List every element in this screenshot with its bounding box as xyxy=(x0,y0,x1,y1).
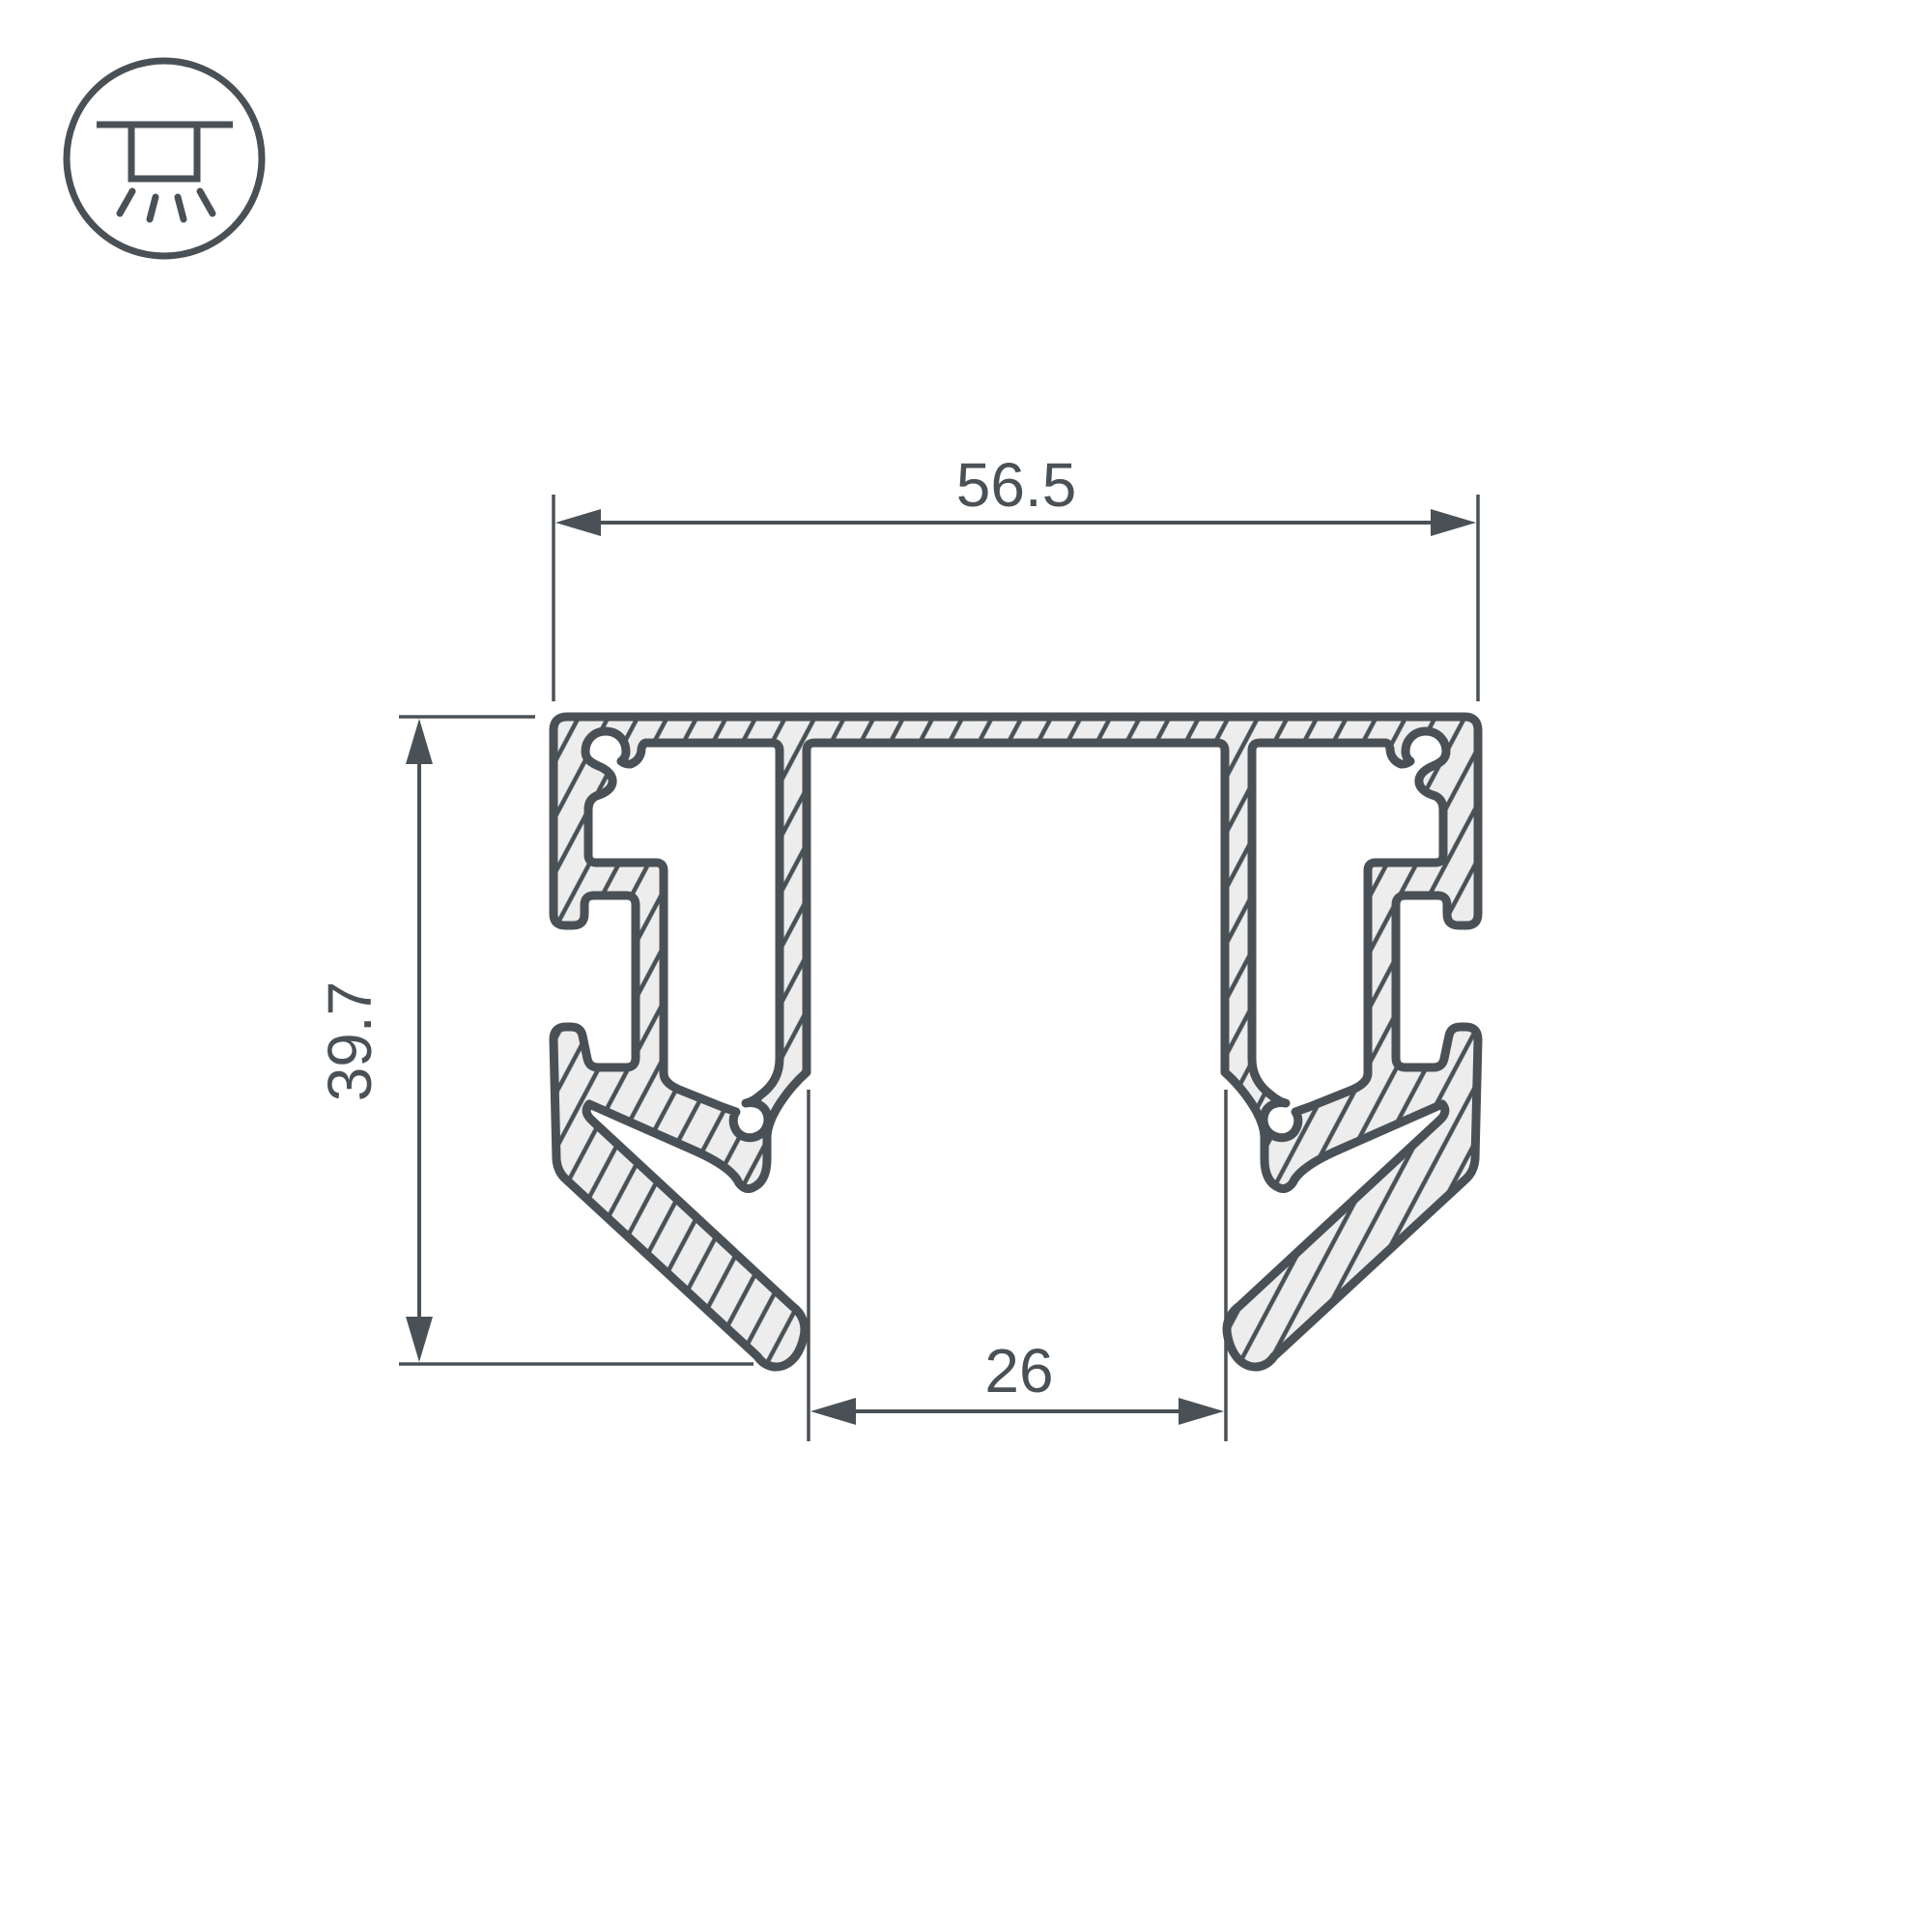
dimension-opening: 26 xyxy=(809,1090,1226,1441)
light-rays-icon xyxy=(120,191,213,219)
width-dimension-label: 56.5 xyxy=(956,450,1077,520)
height-arrow-top xyxy=(406,719,433,764)
technical-drawing-canvas: 56.5 39.7 26 xyxy=(0,0,1932,1932)
mount-type-icon xyxy=(67,61,262,256)
fixture-box-icon xyxy=(131,125,197,179)
width-arrow-right xyxy=(1431,509,1476,536)
profile-material-shape xyxy=(554,717,1478,1367)
profile-cross-section xyxy=(554,717,1478,1367)
opening-arrow-right xyxy=(1179,1398,1224,1425)
opening-dimension-label: 26 xyxy=(984,1336,1053,1406)
opening-arrow-left xyxy=(810,1398,856,1425)
icon-circle xyxy=(67,61,262,256)
width-arrow-left xyxy=(555,509,601,536)
dimension-width: 56.5 xyxy=(554,450,1478,701)
height-dimension-label: 39.7 xyxy=(315,981,384,1102)
height-arrow-bottom xyxy=(406,1317,433,1362)
drawing-page: 56.5 39.7 26 xyxy=(0,0,1932,1932)
